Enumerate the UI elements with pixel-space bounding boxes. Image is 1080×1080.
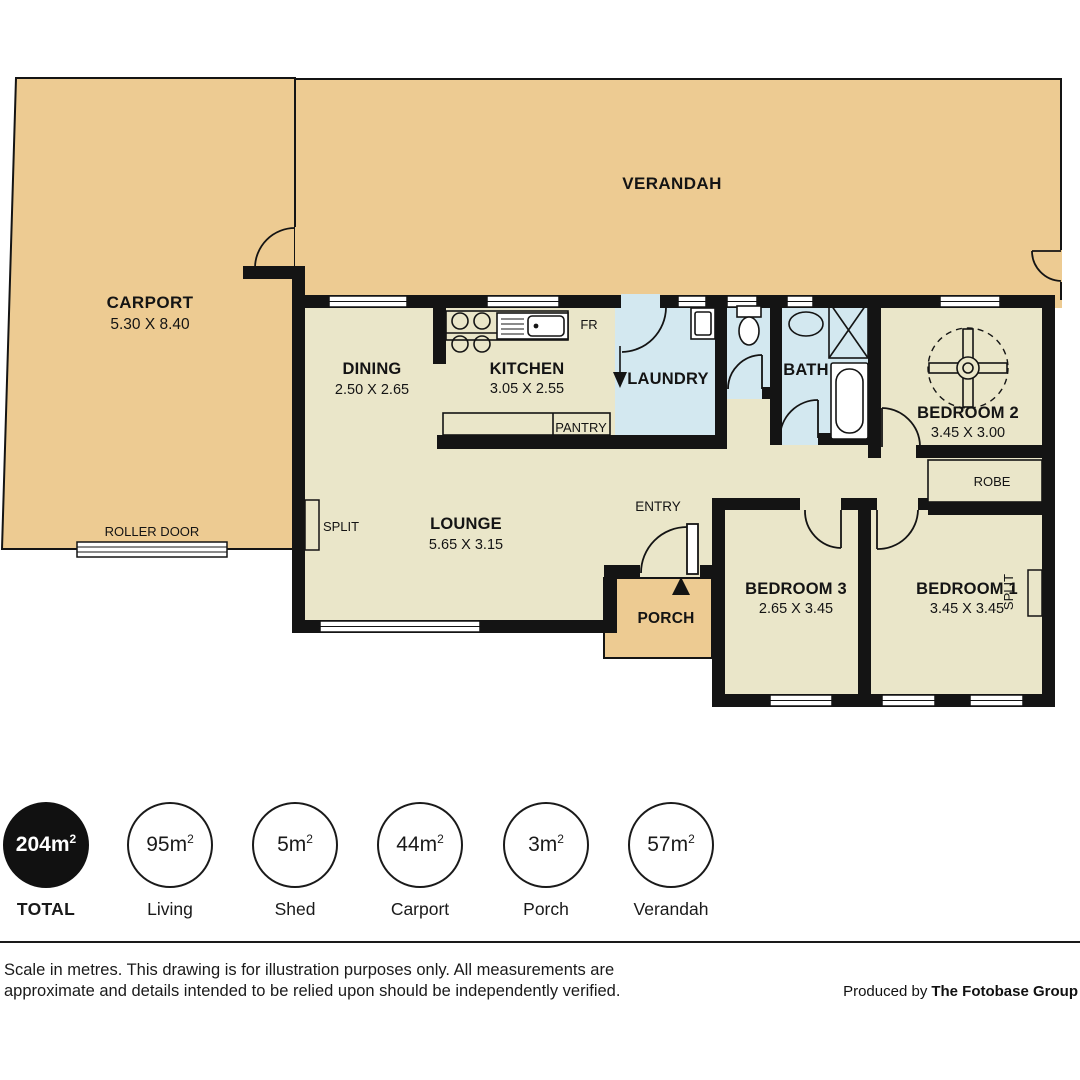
disclaimer-line-2: approximate and details intended to be r… <box>4 981 620 1002</box>
footer-divider <box>0 941 1080 943</box>
bedroom3-label: BEDROOM 3 <box>745 580 847 598</box>
stat-verandah: 57m2 Verandah <box>611 802 731 920</box>
bath-label: BATH <box>783 361 828 379</box>
stat-carport: 44m2 Carport <box>360 802 480 920</box>
stat-living-label: Living <box>110 899 230 920</box>
credit-prefix: Produced by <box>843 983 927 1000</box>
window <box>329 296 407 307</box>
stat-porch: 3m2 Porch <box>486 802 606 920</box>
roller-door-icon <box>77 542 227 557</box>
lounge-label: LOUNGE <box>430 515 502 533</box>
split-lounge-label: SPLIT <box>323 519 359 534</box>
dining-dims: 2.50 X 2.65 <box>335 382 409 398</box>
dining-label: DINING <box>343 360 402 378</box>
stat-total-circle: 204m2 <box>3 802 89 888</box>
sink-icon <box>497 313 568 339</box>
fridge-label: FR <box>580 317 597 332</box>
disclaimer-line-1: Scale in metres. This drawing is for ill… <box>4 960 620 981</box>
stat-total-label: TOTAL <box>0 899 106 920</box>
window <box>678 296 706 307</box>
stat-porch-label: Porch <box>486 899 606 920</box>
credit-producer: The Fotobase Group <box>931 983 1078 1000</box>
window <box>320 621 480 632</box>
split-bedroom1-label: SPLIT <box>1001 574 1016 610</box>
stat-verandah-label: Verandah <box>611 899 731 920</box>
stat-shed: 5m2 Shed <box>235 802 355 920</box>
window <box>970 695 1023 706</box>
carport-area <box>2 78 295 549</box>
stat-shed-circle: 5m2 <box>252 802 338 888</box>
credit-text: Produced byThe Fotobase Group <box>843 983 1078 1000</box>
laundry-label: LAUNDRY <box>627 370 708 388</box>
verandah-area <box>295 78 1062 308</box>
porch-label: PORCH <box>638 610 695 627</box>
bedroom2-dims: 3.45 X 3.00 <box>931 425 1005 441</box>
bedroom2-label: BEDROOM 2 <box>917 404 1019 422</box>
carport-dims: 5.30 X 8.40 <box>110 316 190 333</box>
window <box>940 296 1000 307</box>
disclaimer-text: Scale in metres. This drawing is for ill… <box>4 960 620 1002</box>
window <box>487 296 559 307</box>
laundry-tub-icon <box>691 308 715 339</box>
carport-label: CARPORT <box>107 293 194 312</box>
window <box>882 695 935 706</box>
floor-plan: ROBE <box>0 0 1080 770</box>
bedroom1-dims: 3.45 X 3.45 <box>930 601 1004 617</box>
pantry-label: PANTRY <box>555 420 607 435</box>
verandah-label: VERANDAH <box>622 174 722 193</box>
stat-carport-label: Carport <box>360 899 480 920</box>
toilet-icon <box>737 306 761 345</box>
window <box>770 695 832 706</box>
split-unit-bedroom1 <box>1028 570 1042 616</box>
stat-shed-label: Shed <box>235 899 355 920</box>
stat-verandah-circle: 57m2 <box>628 802 714 888</box>
robe: ROBE <box>928 460 1042 502</box>
stat-living-circle: 95m2 <box>127 802 213 888</box>
kitchen-dims: 3.05 X 2.55 <box>490 381 564 397</box>
lounge-dims: 5.65 X 3.15 <box>429 537 503 553</box>
roller-door-label: ROLLER DOOR <box>105 524 200 539</box>
entry-label: ENTRY <box>635 499 681 514</box>
stat-porch-circle: 3m2 <box>503 802 589 888</box>
stat-carport-circle: 44m2 <box>377 802 463 888</box>
split-unit-lounge <box>305 500 319 550</box>
robe-label: ROBE <box>974 474 1011 489</box>
window <box>787 296 813 307</box>
bedroom3-dims: 2.65 X 3.45 <box>759 601 833 617</box>
stat-living: 95m2 Living <box>110 802 230 920</box>
kitchen-label: KITCHEN <box>490 360 565 378</box>
bathtub-icon <box>831 363 868 439</box>
stat-total: 204m2 TOTAL <box>0 802 106 920</box>
